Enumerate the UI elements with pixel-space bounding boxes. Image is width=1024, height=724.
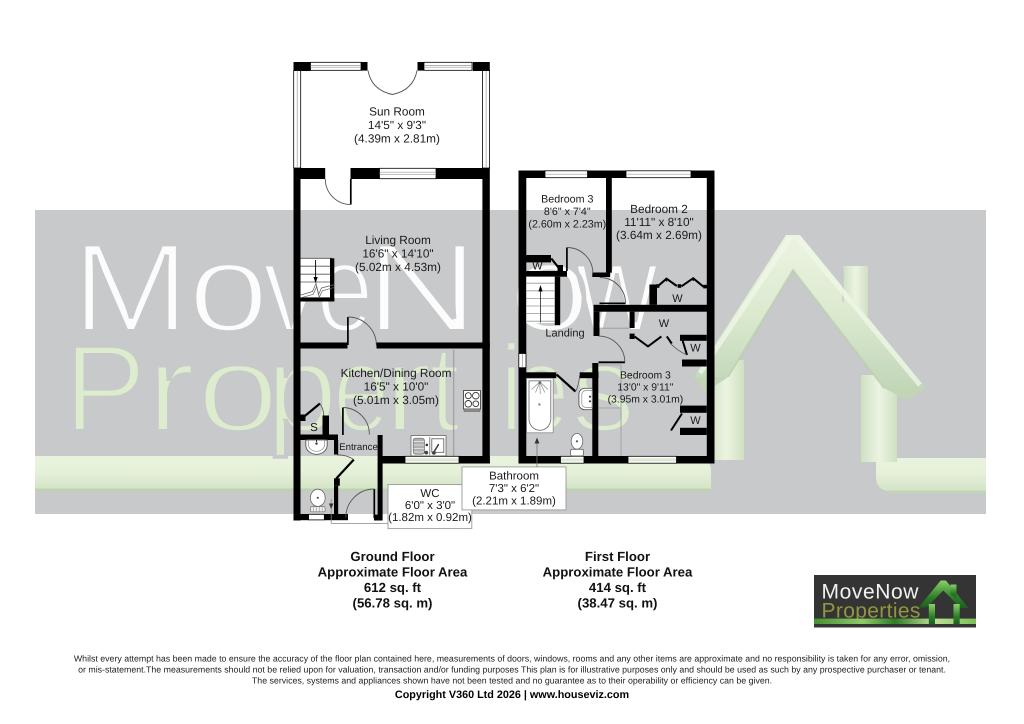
svg-text:(2.21m x 1.89m): (2.21m x 1.89m): [472, 496, 556, 508]
svg-text:Kitchen/Dining Room: Kitchen/Dining Room: [341, 366, 452, 380]
svg-text:(38.47 sq. m): (38.47 sq. m): [578, 596, 658, 611]
svg-text:Bedroom 2: Bedroom 2: [630, 202, 688, 216]
svg-text:Bedroom 3: Bedroom 3: [620, 371, 671, 382]
svg-text:W: W: [672, 293, 683, 305]
svg-text:6'0" x 3'0": 6'0" x 3'0": [405, 500, 455, 512]
svg-text:W: W: [659, 318, 670, 330]
svg-text:(3.64m x 2.69m): (3.64m x 2.69m): [616, 228, 702, 242]
svg-text:Sun Room: Sun Room: [369, 105, 425, 119]
svg-text:Whilst every attempt has been: Whilst every attempt has been made to en…: [74, 654, 950, 664]
svg-text:(4.39m x 2.81m): (4.39m x 2.81m): [354, 132, 440, 146]
svg-text:Approximate Floor Area: Approximate Floor Area: [543, 565, 693, 580]
svg-text:First Floor: First Floor: [585, 549, 650, 564]
svg-text:612 sq. ft: 612 sq. ft: [364, 580, 422, 595]
svg-text:Ground Floor: Ground Floor: [350, 549, 434, 564]
svg-text:(3.95m x 3.01m): (3.95m x 3.01m): [608, 395, 684, 406]
svg-text:P: P: [64, 320, 147, 458]
svg-text:W: W: [690, 343, 701, 355]
svg-text:W: W: [690, 415, 701, 427]
svg-text:Approximate Floor Area: Approximate Floor Area: [318, 565, 468, 580]
svg-text:414 sq. ft: 414 sq. ft: [589, 580, 647, 595]
svg-text:Landing: Landing: [545, 328, 584, 340]
svg-text:(2.60m x 2.23m): (2.60m x 2.23m): [528, 219, 606, 231]
svg-text:(5.02m x 4.53m): (5.02m x 4.53m): [355, 260, 441, 274]
svg-text:16'6" x 14'10": 16'6" x 14'10": [362, 247, 433, 261]
svg-text:Bathroom: Bathroom: [489, 471, 539, 483]
svg-text:(56.78 sq. m): (56.78 sq. m): [353, 596, 433, 611]
svg-text:W: W: [532, 261, 543, 273]
svg-text:11'11" x 8'10": 11'11" x 8'10": [624, 215, 694, 229]
svg-text:Living Room: Living Room: [365, 233, 431, 247]
svg-text:8'6" x 7'4": 8'6" x 7'4": [544, 206, 591, 218]
svg-text:7'3" x 6'2": 7'3" x 6'2": [489, 483, 539, 495]
svg-text:WC: WC: [420, 488, 439, 500]
svg-text:16'5" x 10'0": 16'5" x 10'0": [364, 380, 429, 394]
svg-text:Bedroom 3: Bedroom 3: [541, 194, 593, 206]
svg-text:Entrance: Entrance: [339, 442, 378, 453]
svg-text:r: r: [146, 320, 196, 458]
svg-text:Copyright V360 Ltd 2026 | www.: Copyright V360 Ltd 2026 | www.houseviz.c…: [395, 689, 629, 701]
svg-text:or mis-statement.The measureme: or mis-statement.The measurements should…: [78, 665, 946, 675]
svg-text:(1.82m x 0.92m): (1.82m x 0.92m): [388, 512, 472, 524]
svg-text:S: S: [310, 422, 318, 434]
svg-text:The services, systems and appl: The services, systems and appliances sho…: [252, 676, 772, 686]
svg-text:14'5" x 9'3": 14'5" x 9'3": [368, 118, 426, 132]
svg-text:13'0" x 9'11": 13'0" x 9'11": [617, 383, 674, 394]
svg-text:(5.01m x 3.05m): (5.01m x 3.05m): [353, 393, 439, 407]
